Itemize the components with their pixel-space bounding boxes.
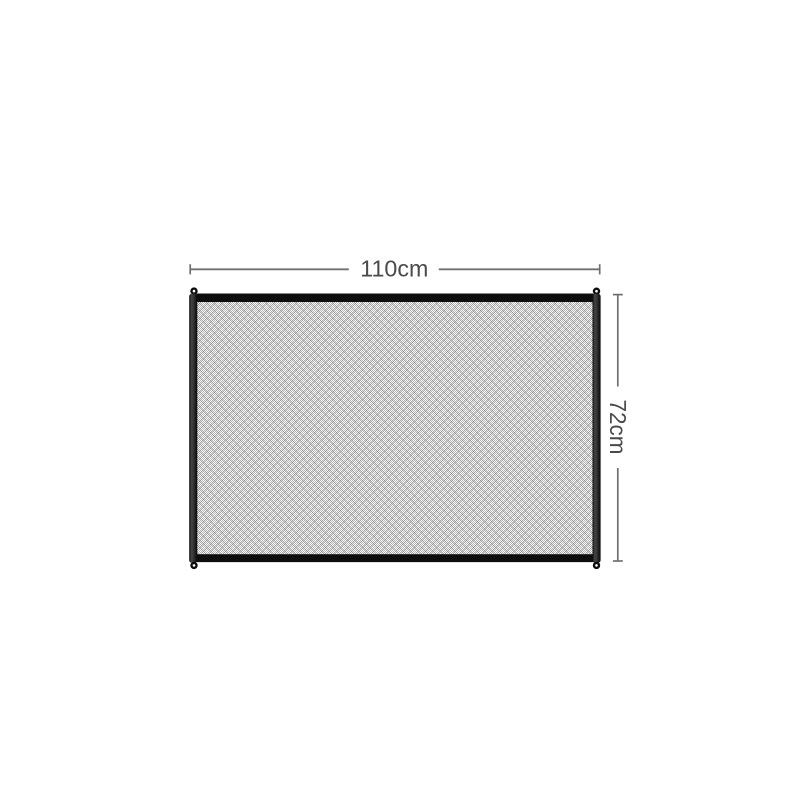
svg-text:110cm: 110cm bbox=[360, 256, 428, 282]
svg-text:72cm: 72cm bbox=[605, 400, 631, 455]
